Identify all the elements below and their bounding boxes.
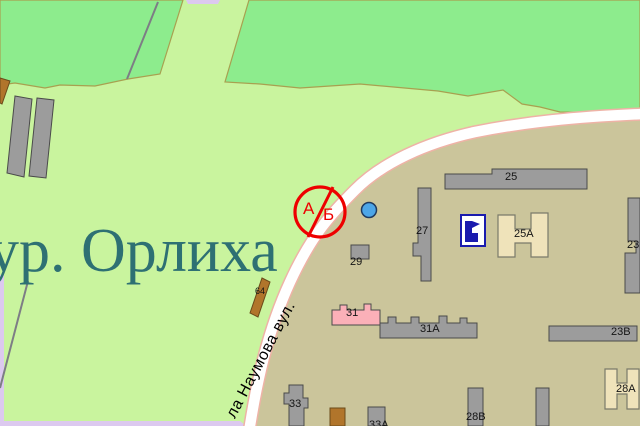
building-block: [330, 408, 345, 426]
secondary-road-bottom: [0, 421, 246, 426]
building-29: [351, 245, 369, 259]
institution-icon[interactable]: [461, 215, 485, 246]
secondary-road-top: [186, 0, 220, 4]
map-layers: [0, 0, 640, 426]
billboard-sign-letter-b: Б: [323, 206, 334, 223]
map-canvas[interactable]: ур. Орлиха ла Наумова вул. А Б 25 27 29 …: [0, 0, 640, 426]
building-23v: [549, 326, 637, 341]
billboard-sign-letter-a: А: [303, 200, 314, 217]
building-block: [536, 388, 549, 426]
poi-marker-icon[interactable]: [362, 203, 377, 218]
building-28v: [468, 388, 483, 426]
building-33a: [368, 407, 385, 426]
secondary-road-left: [0, 275, 4, 426]
forest-area-left: [0, 0, 183, 88]
area-name-label: ур. Орлиха: [0, 220, 278, 282]
